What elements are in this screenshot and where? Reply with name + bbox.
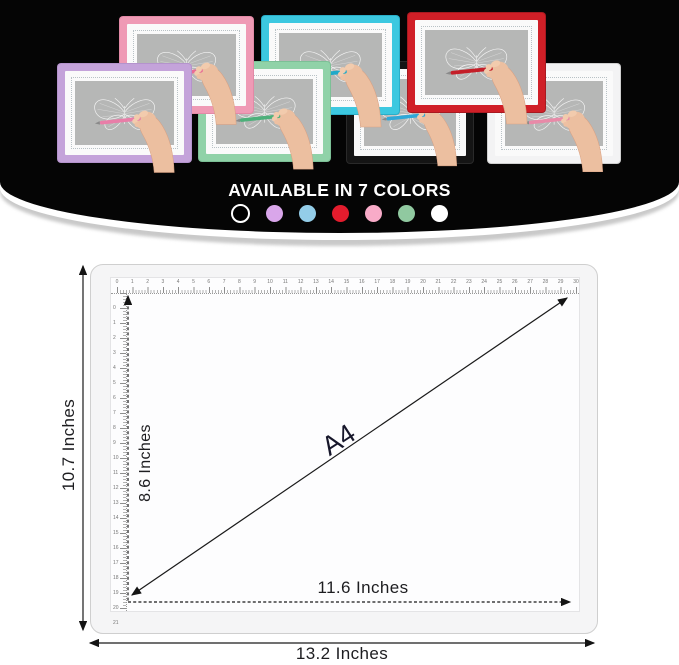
inner-height-label: 8.6 Inches <box>137 424 155 502</box>
outer-width-label: 13.2 Inches <box>296 644 388 664</box>
color-swatch-white <box>431 205 448 222</box>
finger <box>134 122 139 127</box>
hand-with-stylus <box>460 35 542 124</box>
color-swatch-black <box>231 204 250 223</box>
color-swatch-row <box>0 204 679 223</box>
outer-height-label: 10.7 Inches <box>59 399 79 491</box>
color-swatch-purple <box>266 205 283 222</box>
finger <box>196 74 201 79</box>
light-pad-purple <box>58 64 191 162</box>
finger <box>340 75 345 80</box>
color-swatch-blue <box>299 205 316 222</box>
inner-width-label: 11.6 Inches <box>317 578 408 598</box>
color-swatch-pink <box>365 205 382 222</box>
light-pad-red <box>408 13 545 112</box>
hero-title: AVAILABLE IN 7 COLORS <box>0 180 679 201</box>
hand-with-stylus <box>538 86 617 172</box>
finger <box>419 118 424 123</box>
finger <box>486 72 491 77</box>
product-infographic: AVAILABLE IN 7 COLORS 012345678910111213… <box>0 0 679 665</box>
color-swatch-green <box>398 205 415 222</box>
hand-with-stylus <box>249 84 328 169</box>
hand-with-stylus <box>109 86 189 172</box>
finger <box>564 122 569 127</box>
finger <box>274 119 279 124</box>
color-swatch-red <box>332 205 349 222</box>
